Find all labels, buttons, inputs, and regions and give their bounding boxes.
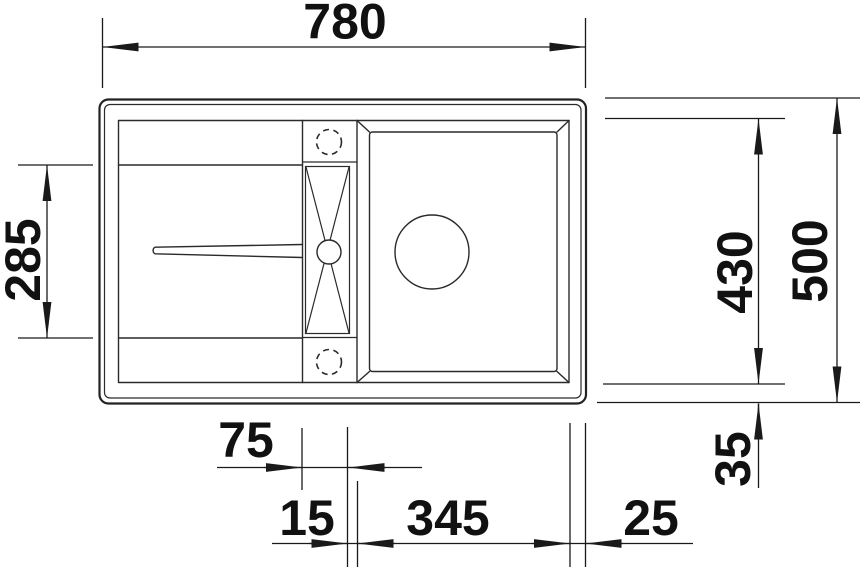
sink-inner-edge xyxy=(105,105,582,399)
center-strip xyxy=(303,121,358,383)
main-bowl-drain-hole xyxy=(395,215,469,289)
dimension-label-25: 25 xyxy=(623,490,679,546)
tap-hole-top-icon xyxy=(317,130,342,155)
sink-outline xyxy=(100,100,587,404)
dimension-label-345: 345 xyxy=(406,490,489,546)
dimension-overall-width: 780 xyxy=(103,0,586,88)
main-bowl-wall-chamfers xyxy=(357,121,569,383)
strip-drain-hole xyxy=(317,240,341,264)
dimension-label-35: 35 xyxy=(705,431,761,487)
dimension-bowl-depth: 430 xyxy=(603,119,785,385)
drainboard xyxy=(119,165,303,338)
dimension-label-75: 75 xyxy=(218,412,274,468)
sink-rim-opening xyxy=(119,121,570,383)
dimension-small-bowl-width: 75 xyxy=(217,412,422,490)
dimension-chain-bottom: 15 345 25 xyxy=(272,423,693,567)
dimension-bottom-margin: 35 xyxy=(705,404,761,489)
dimension-label-285: 285 xyxy=(0,218,51,301)
dimension-label-430: 430 xyxy=(707,230,763,313)
drainboard-groove xyxy=(153,245,302,258)
dimension-label-15: 15 xyxy=(279,490,335,546)
sink-technical-drawing: 780 285 430 500 35 75 15 xyxy=(0,0,862,569)
sink-outer-edge xyxy=(100,100,587,404)
sink-technical-drawing-canvas: 780 285 430 500 35 75 15 xyxy=(0,0,862,569)
main-bowl xyxy=(357,121,569,383)
dimension-drainer-depth: 285 xyxy=(0,165,93,338)
dimension-label-780: 780 xyxy=(303,0,386,50)
tap-hole-bottom-icon xyxy=(317,350,342,375)
dimension-label-500: 500 xyxy=(782,219,838,302)
main-bowl-bottom xyxy=(370,132,558,372)
